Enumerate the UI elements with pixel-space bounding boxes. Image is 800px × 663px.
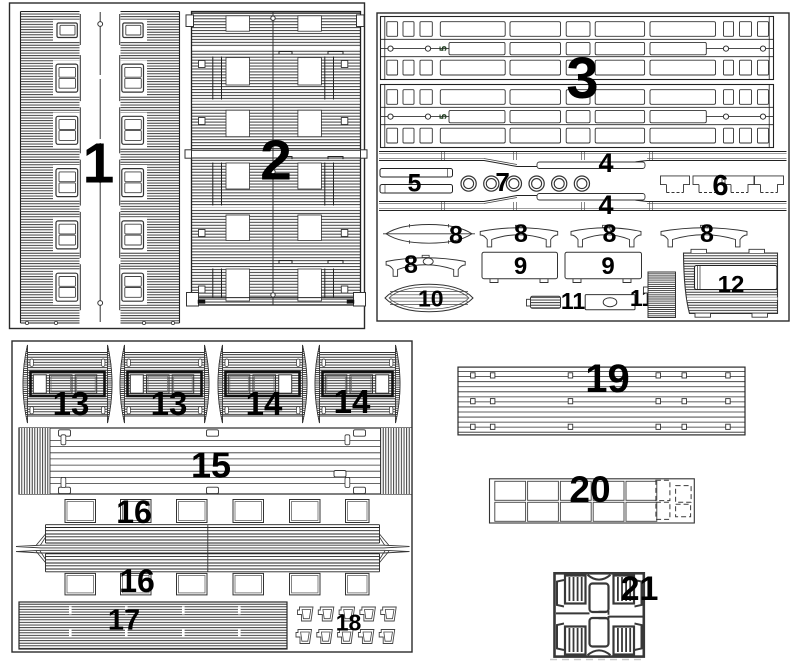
svg-text:8: 8	[514, 220, 528, 248]
svg-text:21: 21	[621, 570, 659, 608]
svg-text:1: 1	[83, 131, 115, 195]
svg-text:16: 16	[116, 494, 152, 530]
svg-text:4: 4	[598, 190, 613, 220]
svg-text:6: 6	[712, 170, 728, 202]
svg-text:19: 19	[585, 357, 630, 401]
svg-text:7: 7	[495, 167, 509, 197]
svg-text:15: 15	[191, 445, 231, 486]
svg-text:14: 14	[246, 385, 283, 422]
svg-text:8: 8	[404, 251, 418, 279]
svg-text:14: 14	[334, 383, 371, 420]
svg-text:11: 11	[561, 288, 586, 314]
svg-text:9: 9	[601, 253, 614, 280]
svg-text:8: 8	[449, 222, 463, 250]
svg-text:5: 5	[439, 113, 450, 119]
svg-text:13: 13	[151, 385, 188, 422]
svg-text:20: 20	[569, 469, 610, 510]
svg-text:10: 10	[418, 285, 444, 311]
svg-text:8: 8	[700, 220, 714, 248]
svg-text:5: 5	[439, 45, 450, 51]
svg-text:16: 16	[119, 563, 155, 599]
svg-text:5: 5	[408, 170, 422, 198]
svg-text:9: 9	[514, 253, 527, 280]
svg-text:17: 17	[108, 605, 140, 637]
svg-text:13: 13	[53, 385, 90, 422]
svg-text:4: 4	[598, 148, 613, 178]
svg-text:2: 2	[260, 128, 292, 192]
svg-text:8: 8	[603, 220, 617, 248]
svg-text:12: 12	[718, 272, 745, 299]
svg-text:18: 18	[336, 609, 362, 635]
svg-text:3: 3	[566, 46, 598, 111]
